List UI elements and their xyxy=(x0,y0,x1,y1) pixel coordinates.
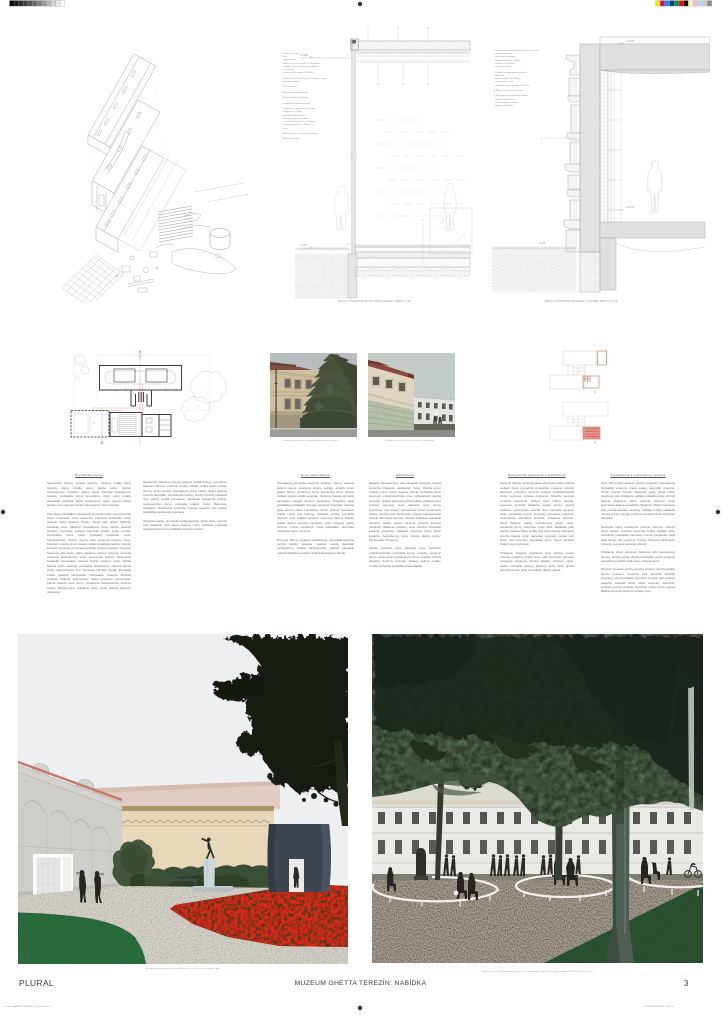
svg-text:-0,150: -0,150 xyxy=(538,241,546,245)
svg-text:5: 5 xyxy=(402,82,404,86)
svg-text:4: 4 xyxy=(377,82,379,86)
svg-text:6: 6 xyxy=(427,82,429,86)
svg-text:2: 2 xyxy=(397,26,399,30)
svg-text:-0,450: -0,450 xyxy=(300,243,308,247)
svg-text:+5,350: +5,350 xyxy=(300,53,309,57)
svg-text:+0,000: +0,000 xyxy=(626,205,635,209)
svg-text:1: 1 xyxy=(367,26,369,30)
svg-text:7: 7 xyxy=(422,218,424,222)
svg-text:1: 1 xyxy=(541,137,543,141)
svg-text:3: 3 xyxy=(427,26,429,30)
svg-text:+3,600: +3,600 xyxy=(626,39,635,43)
